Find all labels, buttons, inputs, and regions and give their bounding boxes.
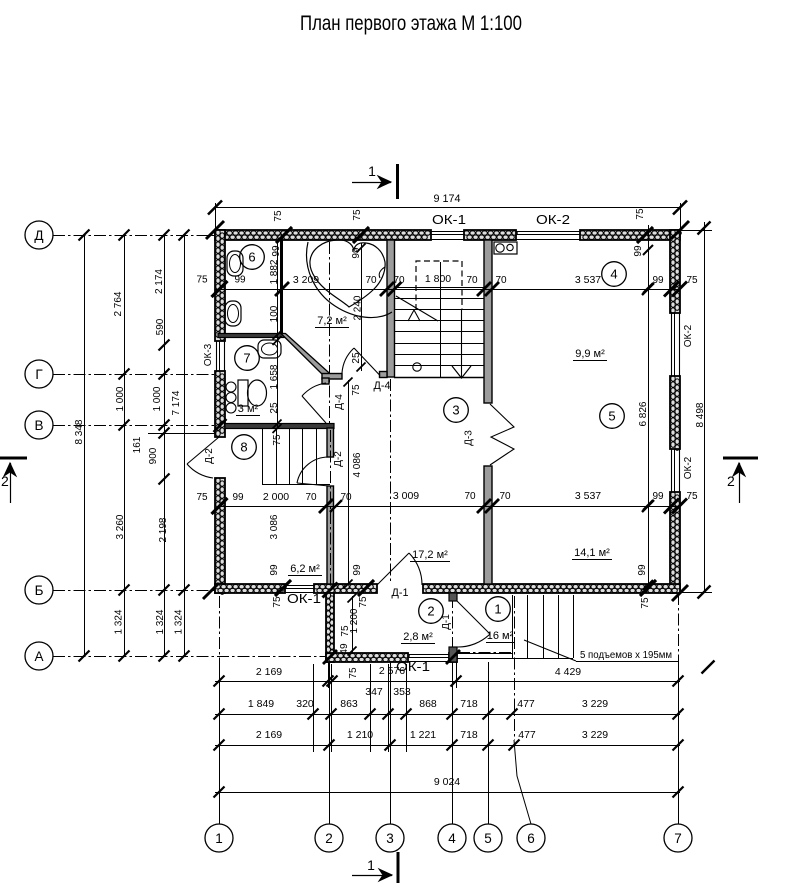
- svg-text:75: 75: [640, 597, 651, 609]
- svg-text:590: 590: [155, 318, 166, 335]
- svg-text:14,1 м²: 14,1 м²: [574, 547, 610, 559]
- svg-text:2: 2: [1, 473, 9, 489]
- svg-text:161: 161: [132, 436, 143, 453]
- svg-text:4: 4: [610, 267, 617, 282]
- svg-text:3 м²: 3 м²: [238, 403, 259, 415]
- svg-text:5 подъемов х 195мм: 5 подъемов х 195мм: [580, 650, 672, 661]
- svg-text:ОК-1: ОК-1: [396, 659, 430, 674]
- svg-text:1 849: 1 849: [248, 698, 274, 710]
- svg-text:99: 99: [232, 492, 244, 503]
- svg-text:99: 99: [351, 247, 362, 259]
- svg-text:4 429: 4 429: [555, 666, 581, 678]
- svg-text:75: 75: [351, 384, 362, 396]
- svg-text:ОК-2: ОК-2: [683, 324, 694, 347]
- svg-text:99: 99: [652, 275, 664, 286]
- svg-text:70: 70: [393, 275, 405, 286]
- svg-text:7,2 м²: 7,2 м²: [317, 315, 347, 327]
- svg-text:2 764: 2 764: [113, 291, 124, 316]
- svg-text:75: 75: [196, 275, 208, 286]
- svg-text:320: 320: [296, 698, 314, 710]
- svg-text:ОК-1: ОК-1: [432, 212, 466, 227]
- svg-text:План первого этажа М 1:100: План первого этажа М 1:100: [300, 12, 522, 35]
- svg-text:1: 1: [494, 602, 501, 617]
- svg-text:1 882: 1 882: [269, 259, 280, 284]
- svg-text:1: 1: [367, 857, 375, 873]
- svg-text:4: 4: [448, 831, 456, 846]
- svg-text:353: 353: [393, 686, 411, 698]
- svg-text:70: 70: [464, 491, 476, 502]
- svg-text:2,8 м²: 2,8 м²: [403, 631, 433, 643]
- svg-text:ОК-3: ОК-3: [203, 343, 214, 366]
- svg-text:99: 99: [269, 564, 280, 576]
- svg-text:3 209: 3 209: [293, 274, 319, 286]
- svg-text:Б: Б: [35, 583, 44, 598]
- svg-text:В: В: [34, 418, 43, 433]
- svg-text:863: 863: [340, 698, 358, 710]
- svg-text:477: 477: [517, 698, 535, 710]
- svg-text:75: 75: [686, 491, 698, 502]
- svg-text:8 348: 8 348: [74, 419, 85, 444]
- svg-text:9 174: 9 174: [433, 193, 460, 205]
- svg-text:5: 5: [608, 409, 615, 424]
- svg-text:9 024: 9 024: [434, 776, 460, 788]
- svg-text:1 800: 1 800: [425, 273, 451, 285]
- svg-text:718: 718: [460, 729, 478, 741]
- svg-text:16 м²: 16 м²: [487, 630, 514, 642]
- svg-text:1: 1: [368, 163, 376, 179]
- svg-text:99: 99: [633, 245, 644, 257]
- svg-text:6: 6: [527, 831, 535, 846]
- svg-text:75: 75: [340, 625, 351, 637]
- svg-text:49: 49: [339, 643, 350, 655]
- svg-text:1 221: 1 221: [410, 729, 436, 741]
- svg-text:3 229: 3 229: [582, 729, 608, 741]
- svg-text:3 260: 3 260: [115, 514, 126, 539]
- svg-text:Д-4: Д-4: [334, 394, 345, 410]
- svg-text:3 537: 3 537: [575, 274, 601, 286]
- svg-text:1 324: 1 324: [155, 609, 166, 634]
- svg-text:2 169: 2 169: [256, 666, 282, 678]
- svg-text:99: 99: [637, 564, 648, 576]
- svg-text:75: 75: [273, 210, 284, 222]
- svg-text:718: 718: [460, 698, 478, 710]
- svg-text:Д-3: Д-3: [464, 430, 475, 446]
- svg-text:2 000: 2 000: [263, 491, 289, 503]
- svg-text:Д-2: Д-2: [333, 451, 344, 467]
- svg-text:5: 5: [484, 831, 492, 846]
- svg-text:А: А: [34, 649, 43, 664]
- svg-text:Д-1: Д-1: [441, 614, 452, 630]
- svg-text:3: 3: [452, 403, 459, 418]
- svg-text:75: 75: [352, 209, 363, 221]
- svg-text:7: 7: [674, 831, 682, 846]
- svg-text:75: 75: [196, 492, 208, 503]
- svg-text:2: 2: [727, 473, 735, 489]
- svg-text:99: 99: [652, 491, 664, 502]
- svg-text:100: 100: [269, 305, 280, 322]
- svg-text:99: 99: [234, 275, 246, 286]
- svg-text:1 324: 1 324: [114, 609, 125, 634]
- svg-text:75: 75: [348, 667, 359, 679]
- svg-text:1 000: 1 000: [152, 386, 163, 411]
- svg-text:70: 70: [365, 275, 377, 286]
- svg-text:75: 75: [635, 208, 646, 220]
- svg-text:Д: Д: [34, 228, 43, 243]
- svg-text:6 826: 6 826: [638, 401, 649, 426]
- svg-text:900: 900: [148, 447, 159, 464]
- svg-text:7 174: 7 174: [171, 390, 182, 415]
- svg-text:1: 1: [215, 831, 223, 846]
- svg-text:99: 99: [271, 245, 282, 257]
- svg-text:477: 477: [518, 729, 536, 741]
- svg-text:2: 2: [325, 831, 333, 846]
- svg-text:868: 868: [419, 698, 437, 710]
- svg-text:70: 70: [466, 275, 478, 286]
- svg-text:3 086: 3 086: [269, 514, 280, 539]
- svg-text:1 324: 1 324: [174, 609, 185, 634]
- svg-text:2 198: 2 198: [158, 517, 169, 542]
- svg-text:1 210: 1 210: [347, 729, 373, 741]
- svg-text:ОК-1: ОК-1: [287, 591, 321, 606]
- svg-text:70: 70: [495, 275, 507, 286]
- svg-text:347: 347: [365, 686, 383, 698]
- svg-text:7: 7: [243, 351, 250, 366]
- svg-text:17,2 м²: 17,2 м²: [412, 549, 448, 561]
- svg-text:4 086: 4 086: [352, 452, 363, 477]
- svg-text:25: 25: [351, 352, 362, 364]
- svg-text:9,9 м²: 9,9 м²: [575, 348, 605, 360]
- svg-text:2 174: 2 174: [154, 269, 165, 294]
- svg-text:ОК-2: ОК-2: [683, 456, 694, 479]
- svg-text:99: 99: [352, 564, 363, 576]
- svg-text:75: 75: [272, 434, 283, 446]
- svg-text:25: 25: [269, 402, 280, 414]
- svg-text:1 000: 1 000: [115, 386, 126, 411]
- svg-text:75: 75: [686, 275, 698, 286]
- svg-text:Г: Г: [35, 367, 43, 382]
- svg-text:ОК-2: ОК-2: [536, 212, 570, 227]
- svg-text:Д-2: Д-2: [204, 448, 215, 464]
- svg-text:70: 70: [340, 492, 352, 503]
- svg-text:3 537: 3 537: [575, 490, 601, 502]
- svg-text:Д-4: Д-4: [374, 380, 391, 392]
- svg-text:8: 8: [240, 440, 247, 455]
- svg-text:1 658: 1 658: [269, 364, 280, 389]
- svg-text:75: 75: [272, 596, 283, 608]
- svg-text:3: 3: [386, 831, 394, 846]
- svg-text:2 169: 2 169: [256, 729, 282, 741]
- svg-text:6: 6: [248, 250, 255, 265]
- svg-text:3 229: 3 229: [582, 698, 608, 710]
- svg-text:3 009: 3 009: [393, 490, 419, 502]
- svg-text:2: 2: [427, 604, 434, 619]
- svg-text:8 498: 8 498: [695, 402, 706, 427]
- svg-text:70: 70: [499, 491, 511, 502]
- svg-text:Д-1: Д-1: [392, 587, 409, 599]
- svg-text:75: 75: [358, 596, 369, 608]
- svg-text:6,2 м²: 6,2 м²: [290, 563, 320, 575]
- svg-text:70: 70: [305, 492, 317, 503]
- svg-text:2 240: 2 240: [353, 295, 364, 320]
